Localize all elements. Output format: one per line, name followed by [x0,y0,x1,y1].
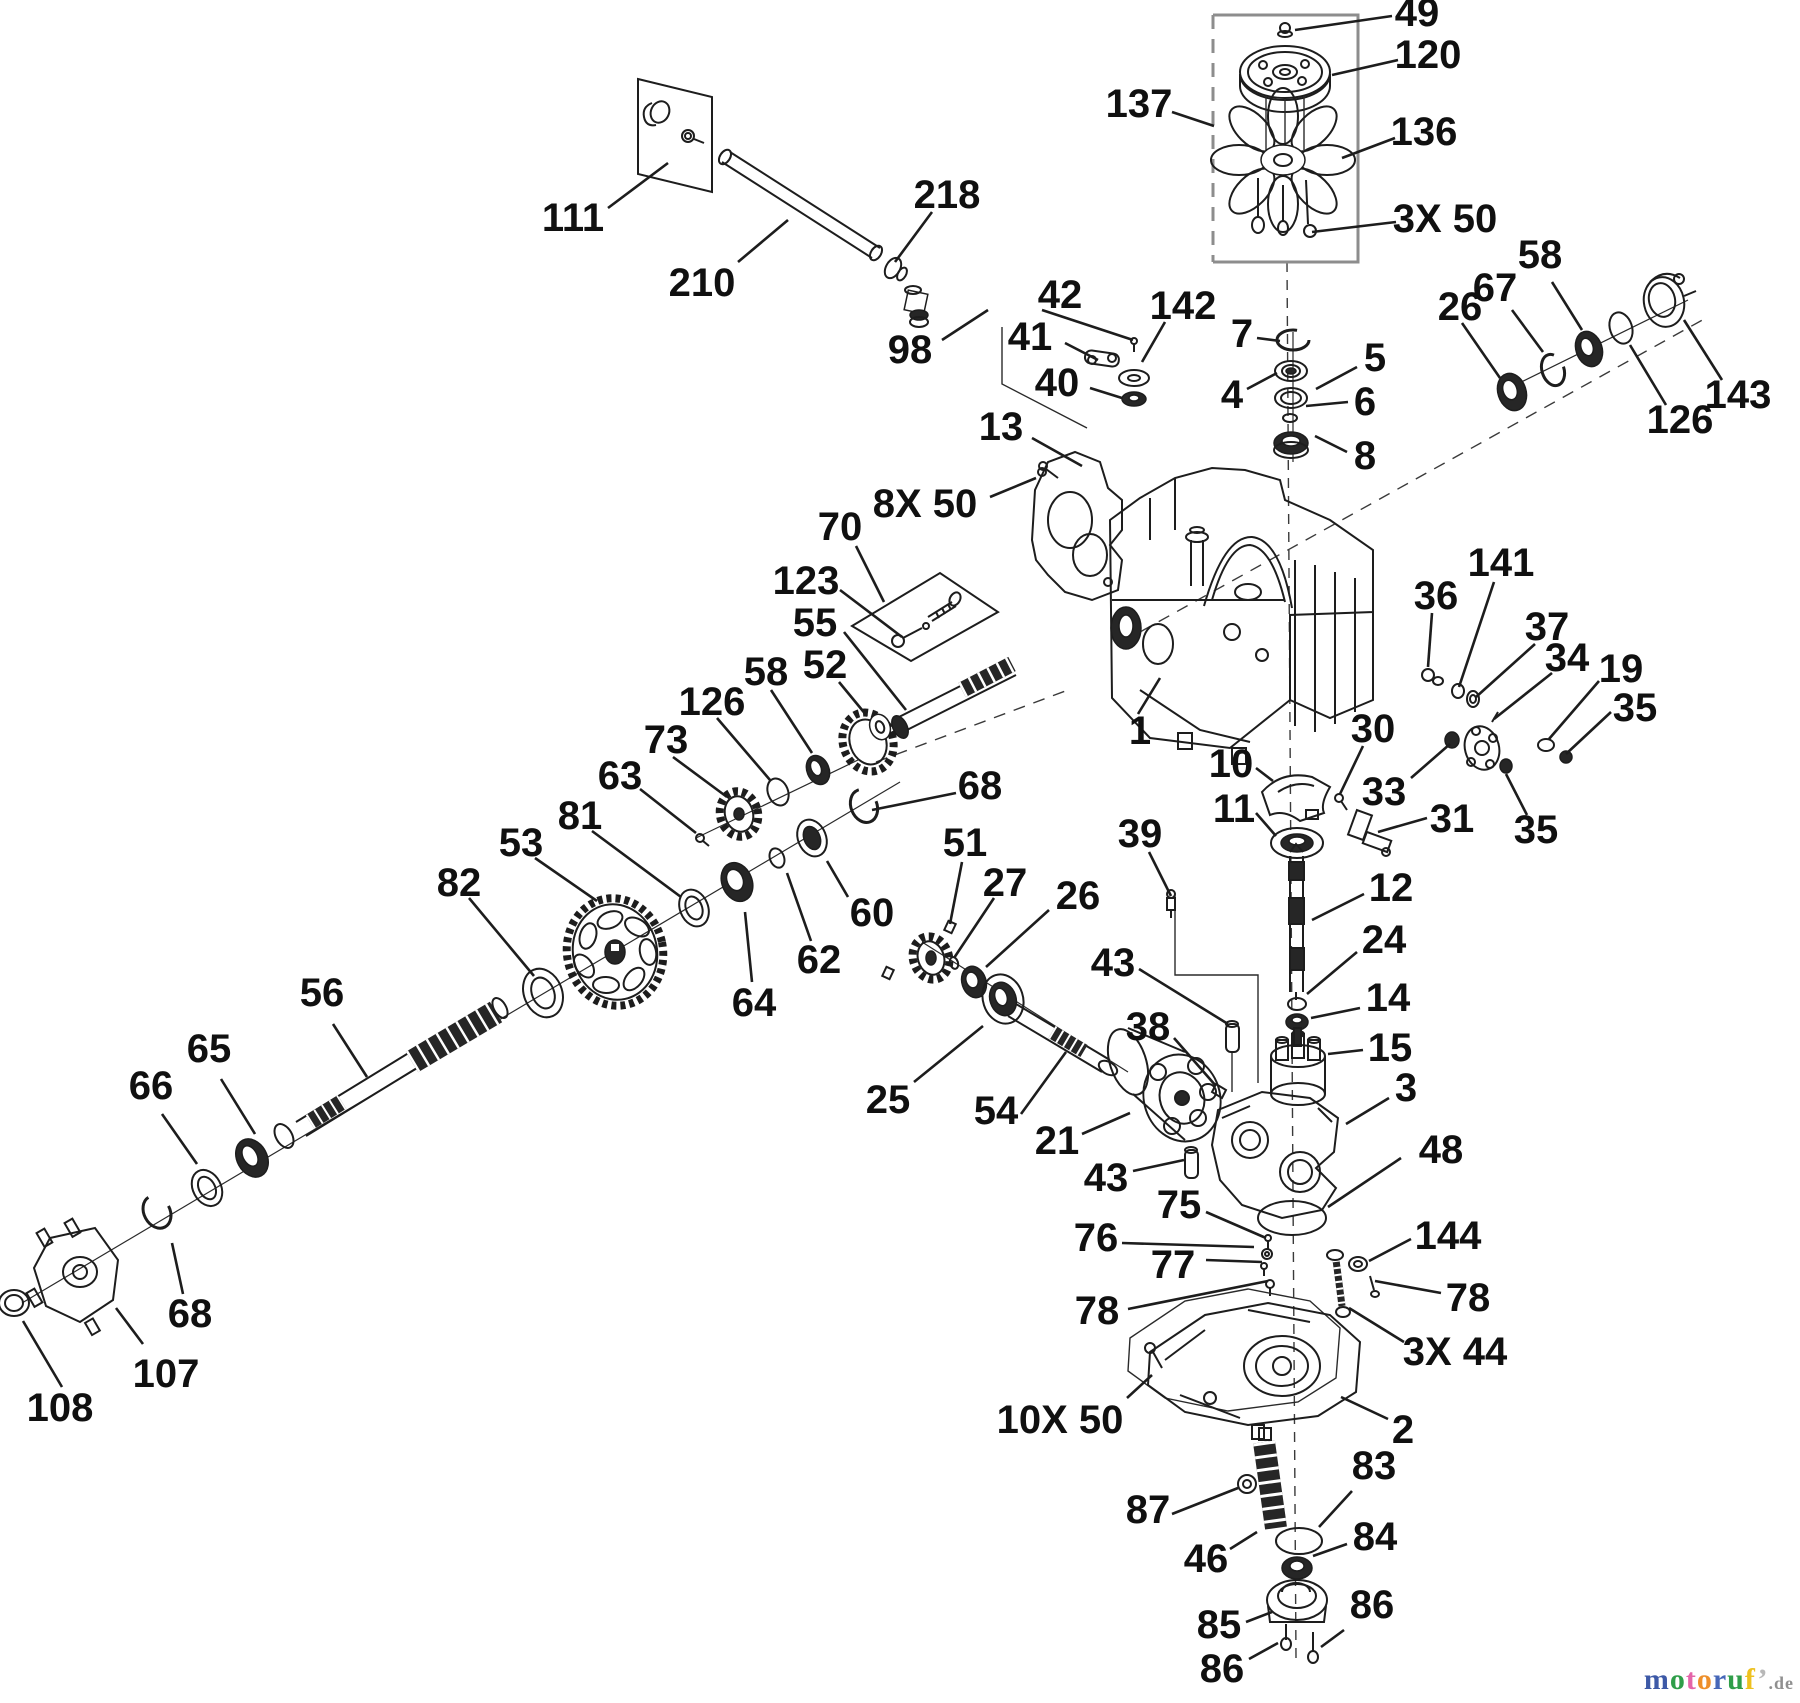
washer-142 [1119,370,1149,386]
leader-line [1566,712,1611,754]
seal-66 [186,1165,229,1212]
part-label: 25 [866,1078,911,1122]
o-ring-83 [1276,1528,1322,1554]
reduction-gear-train [516,752,882,1023]
leader-line [1328,1050,1363,1054]
part-label: 31 [1430,797,1475,841]
leader-line [1307,952,1357,994]
axle-assembly [0,995,511,1335]
part-label: 6 [1354,380,1376,424]
trunnion-10 [1262,775,1330,821]
leader-line [333,1024,367,1077]
leader-line [1332,60,1398,75]
part-label: 58 [1518,233,1563,277]
leader-line [1149,852,1171,896]
leader-line [1142,322,1165,362]
part-label: 36 [1414,574,1459,618]
leader-line [1295,16,1392,30]
part-label: 34 [1545,636,1590,680]
part-label: 12 [1369,866,1414,910]
leader-line [954,898,994,958]
part-label: 1 [1129,709,1151,753]
part-label: 42 [1038,273,1083,317]
watermark-suffix: .de [1769,1673,1795,1693]
leader-line [172,1243,183,1294]
part-label: 10X 50 [997,1398,1124,1442]
part-label: 51 [943,821,988,865]
leader-line [673,757,727,797]
leader-line [1342,138,1395,158]
washer-27 [948,956,959,970]
leader-line [787,873,811,941]
clamp-85 [1267,1580,1327,1622]
part-label: 73 [644,718,689,762]
leader-line [1082,1113,1130,1134]
watermark-letter: o [1697,1663,1713,1696]
leader-line [738,220,788,262]
leader-line [469,898,534,976]
snap-ring-67 [1538,351,1569,388]
part-label: 60 [850,891,895,935]
part-label: 111 [542,196,604,240]
part-label: 63 [598,754,643,798]
ring-126 [1606,309,1637,346]
leader-line [1256,768,1273,781]
upper-housing-assembly [1032,452,1373,764]
leader-line [162,1114,197,1164]
leader-line [717,718,770,780]
leader-line [1021,1052,1066,1114]
screws-75-76-77 [1261,1235,1274,1296]
part-label: 120 [1395,33,1462,77]
filter-group [1238,1428,1327,1663]
part-label: 27 [983,861,1028,905]
bolt-3x44 [1327,1250,1350,1317]
part-label: 141 [1468,541,1535,585]
arm-31 [1348,810,1391,856]
side-bearing-row [1493,273,1696,414]
leader-line [827,861,848,897]
part-label: 66 [129,1064,174,1108]
part-label: 56 [300,971,345,1015]
leader-line [1341,1397,1388,1419]
part-label: 126 [1647,398,1714,442]
part-label: 13 [979,405,1024,449]
leader-line [839,682,867,716]
wheel-hub-107 [27,1219,118,1335]
watermark-letter: o [1670,1663,1686,1696]
leader-line [1630,345,1666,405]
part-label: 77 [1151,1243,1196,1287]
ring-81 [674,885,714,931]
part-label: 55 [793,601,838,645]
part-label: 43 [1084,1156,1129,1200]
elbow-fitting-98 [904,286,928,327]
leader-line [640,789,696,833]
part-label: 126 [679,680,746,724]
lower-housing-assembly [1128,1289,1360,1439]
fan-assembly-box [1211,15,1358,262]
center-section-3 [1212,1092,1338,1218]
part-label: 86 [1350,1583,1395,1627]
leader-line [1462,323,1500,378]
centerlines [22,262,1706,1658]
leader-line [856,546,884,602]
part-label: 41 [1008,315,1053,359]
washer-37 [1467,691,1479,707]
part-label: 35 [1514,808,1559,852]
parts-diagram-page: 491201371363X 50111210218984241401427456… [0,0,1800,1703]
part-label: 39 [1118,812,1163,856]
leader-line [1256,813,1276,836]
motoruf-watermark: motoruf’.de [1644,1663,1794,1697]
rod-210 [716,148,884,263]
part-label: 142 [1150,284,1217,328]
leader-line [1206,1212,1266,1238]
leader-line [1128,1281,1268,1309]
leader-line [914,1026,983,1082]
watermark-letter: f [1745,1663,1758,1696]
dowel-43a [1226,1021,1239,1052]
part-label: 30 [1351,707,1396,751]
input-shaft-stack [1274,330,1309,458]
leader-line [1316,367,1357,389]
washer-6 [1283,414,1297,422]
part-label: 144 [1415,1214,1482,1258]
leader-line [1459,582,1494,687]
leader-line [1512,310,1543,352]
part-label: 136 [1391,110,1458,154]
leader-line [745,912,752,982]
part-label: 137 [1106,82,1173,126]
part-label: 107 [133,1352,200,1396]
part-label: 3X 50 [1393,197,1498,241]
watermark-letter: r [1713,1663,1727,1696]
leader-line [1247,373,1277,389]
leader-line [1328,1158,1401,1207]
part-label: 98 [888,328,933,372]
part-label: 8 [1354,434,1376,478]
o-ring-48 [1258,1201,1326,1235]
part-label: 19 [1599,647,1644,691]
part-label: 81 [558,794,603,838]
part-label: 78 [1075,1289,1120,1333]
leader-line [1315,436,1347,452]
part-label: 14 [1366,976,1411,1020]
washer-144 [1349,1257,1379,1297]
shaft-12 [1289,844,1304,1000]
leader-line [23,1321,62,1387]
leader-line [942,310,988,340]
leader-line [1313,1544,1347,1556]
leader-line [950,862,962,924]
bracket-34 [1460,712,1504,774]
leader-line [1340,746,1363,794]
part-label: 48 [1419,1128,1464,1172]
part-label: 3X 44 [1403,1330,1508,1374]
part-label: 78 [1446,1276,1491,1320]
part-label: 58 [744,650,789,694]
part-label: 46 [1184,1537,1229,1581]
leader-line [1321,1630,1344,1647]
part-labels: 491201371363X 50111210218984241401427456… [27,0,1772,1691]
leader-line [221,1079,255,1134]
part-label: 68 [958,764,1003,808]
part-label: 7 [1231,312,1253,356]
part-label: 82 [437,861,482,905]
part-label: 65 [187,1027,232,1071]
leader-line [1312,894,1364,920]
part-label: 10 [1209,742,1254,786]
part-label: 24 [1362,918,1407,962]
pump-input-group [882,921,1231,1152]
plug-111 [644,98,704,143]
leader-line [1312,222,1396,232]
leader-line [116,1308,143,1344]
leader-line [1090,388,1122,398]
part-label: 68 [168,1292,213,1336]
diagram-canvas: 491201371363X 50111210218984241401427456… [0,0,1800,1703]
pump-shaft-group [1271,844,1325,1105]
gasket-13 [1032,452,1122,600]
leader-line [1378,818,1427,832]
part-label: 218 [914,173,981,217]
idler-gear-73 [715,787,764,841]
part-label: 62 [797,938,842,982]
kit-box-111 [638,79,712,192]
leader-line [1428,613,1432,667]
bevel-gear-shaft [834,662,1016,779]
leader-line [1230,1532,1257,1549]
part-label: 75 [1157,1183,1202,1227]
part-label: 52 [803,643,848,687]
nut-35 [1500,759,1512,773]
leader-line [1246,1612,1272,1622]
leader-line [895,212,932,262]
part-label: 4 [1221,373,1244,417]
leader-line [1319,1491,1352,1527]
leader-line [1311,1008,1360,1018]
washer-19 [1538,739,1554,751]
cap-143 [1639,273,1696,330]
part-label: 38 [1126,1005,1171,1049]
leader-line [1249,1643,1278,1659]
part-label: 85 [1197,1603,1242,1647]
part-label: 15 [1368,1026,1413,1070]
part-label: 8X 50 [873,482,978,526]
bevel-gear-52 [834,705,902,778]
part-label: 11 [1213,787,1255,831]
part-label: 143 [1705,373,1772,417]
nut-87 [1238,1475,1256,1493]
screws-86 [1281,1624,1318,1663]
leader-line [1375,1281,1441,1293]
part-label: 54 [974,1089,1019,1133]
part-label: 5 [1364,336,1386,380]
part-label: 21 [1035,1119,1080,1163]
watermark-letter: ’ [1758,1663,1769,1696]
axle-shaft-56 [271,995,511,1151]
watermark-letter: u [1727,1663,1745,1696]
leader-line [771,690,812,753]
part-label: 49 [1395,0,1440,35]
spline-55 [962,664,1012,690]
part-label: 67 [1473,266,1518,310]
dowel-43b [1185,1147,1198,1178]
leader-line [1411,744,1450,778]
hardware-right [1422,669,1572,774]
leader-line [986,910,1049,967]
part-label: 43 [1091,941,1136,985]
leader-line [840,590,902,637]
part-label: 35 [1613,686,1658,730]
leader-line [872,793,956,810]
leader-line [990,478,1036,497]
part-label: 108 [27,1386,94,1430]
leader-line [1172,1488,1238,1514]
snap-ring-68 [846,785,883,826]
leader-line [592,831,681,897]
leader-line [1684,320,1722,380]
leader-line [1206,1260,1262,1262]
part-label: 40 [1035,361,1080,405]
part-label: 210 [669,261,736,305]
part-label: 3 [1395,1066,1417,1110]
part-label: 86 [1200,1647,1245,1691]
leader-line [1552,282,1582,330]
leader-line [1172,112,1214,126]
part-label: 84 [1353,1515,1398,1559]
part-label: 123 [773,559,840,603]
leader-line [1476,644,1535,697]
part-label: 53 [499,821,544,865]
leader-line [1306,402,1348,406]
final-gear-53 [557,889,673,1015]
leader-line [1494,673,1552,719]
pump-shaft [1008,1004,1120,1078]
leader-line [1369,1239,1411,1261]
part-label: 64 [732,981,777,1025]
leader-line [1346,1098,1389,1124]
watermark-letter: t [1686,1663,1697,1696]
snap-ring-68c [138,1191,177,1233]
bearing-82 [516,963,570,1024]
spacer-62 [767,846,787,870]
part-label: 26 [1056,874,1101,918]
watermark-letter: m [1644,1663,1670,1696]
part-label: 83 [1352,1444,1397,1488]
part-label: 76 [1074,1216,1119,1260]
housing-2 [1148,1303,1360,1439]
part-label: 87 [1126,1488,1171,1532]
leader-line [1349,1308,1404,1342]
screws-3x50 [1252,178,1316,237]
part-label: 70 [818,505,863,549]
part-label: 33 [1362,770,1407,814]
bracket-41 [1084,350,1119,368]
leader-line [535,858,597,901]
leader-line [1133,1160,1184,1171]
filter-46 [1259,1428,1276,1528]
